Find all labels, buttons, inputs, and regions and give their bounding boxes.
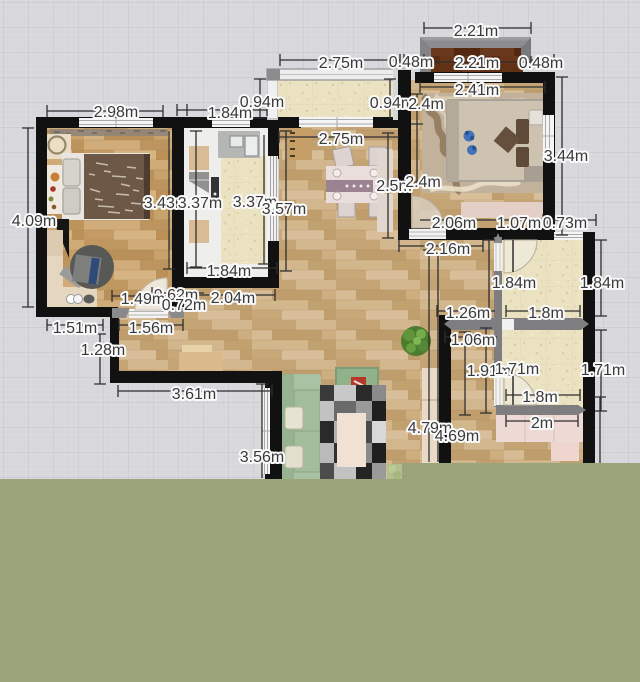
svg-text:2.4m: 2.4m <box>408 96 444 113</box>
svg-text:3.61m: 3.61m <box>172 386 216 403</box>
svg-text:2.4m: 2.4m <box>405 174 441 191</box>
svg-text:2.04m: 2.04m <box>211 290 255 307</box>
svg-text:1.84m: 1.84m <box>207 263 251 280</box>
svg-text:2.75m: 2.75m <box>319 131 363 148</box>
svg-text:1.06m: 1.06m <box>451 332 495 349</box>
svg-text:4.69m: 4.69m <box>435 428 479 445</box>
svg-text:2.16m: 2.16m <box>426 241 470 258</box>
svg-text:0.48m: 0.48m <box>519 55 563 72</box>
svg-text:2.75m: 2.75m <box>319 55 363 72</box>
svg-text:2m: 2m <box>531 415 553 432</box>
svg-text:3.57m: 3.57m <box>262 201 306 218</box>
svg-text:2.21m: 2.21m <box>454 23 498 40</box>
svg-text:1.8m: 1.8m <box>528 305 564 322</box>
svg-text:1.8m: 1.8m <box>522 389 558 406</box>
svg-text:0.72m: 0.72m <box>162 297 206 314</box>
svg-text:0.48m: 0.48m <box>389 54 433 71</box>
svg-text:3.37m: 3.37m <box>178 195 222 212</box>
svg-text:1.07m: 1.07m <box>497 215 541 232</box>
svg-text:0.73m: 0.73m <box>543 215 587 232</box>
svg-text:2.21m: 2.21m <box>455 55 499 72</box>
svg-text:1.51m: 1.51m <box>53 320 97 337</box>
svg-text:3.56m: 3.56m <box>240 449 284 466</box>
svg-text:0.94m: 0.94m <box>240 94 284 111</box>
svg-text:1.71m: 1.71m <box>581 362 625 379</box>
svg-text:1.56m: 1.56m <box>129 320 173 337</box>
svg-text:1.26m: 1.26m <box>446 305 490 322</box>
svg-text:2.98m: 2.98m <box>94 104 138 121</box>
svg-text:3.44m: 3.44m <box>544 148 588 165</box>
svg-text:2.06m: 2.06m <box>432 215 476 232</box>
svg-text:4.09m: 4.09m <box>12 213 56 230</box>
svg-text:1.71m: 1.71m <box>495 361 539 378</box>
svg-text:1.84m: 1.84m <box>492 275 536 292</box>
svg-text:2.41m: 2.41m <box>455 82 499 99</box>
svg-text:1.28m: 1.28m <box>81 342 125 359</box>
svg-text:1.84m: 1.84m <box>580 275 624 292</box>
svg-text:1.49m: 1.49m <box>121 291 165 308</box>
